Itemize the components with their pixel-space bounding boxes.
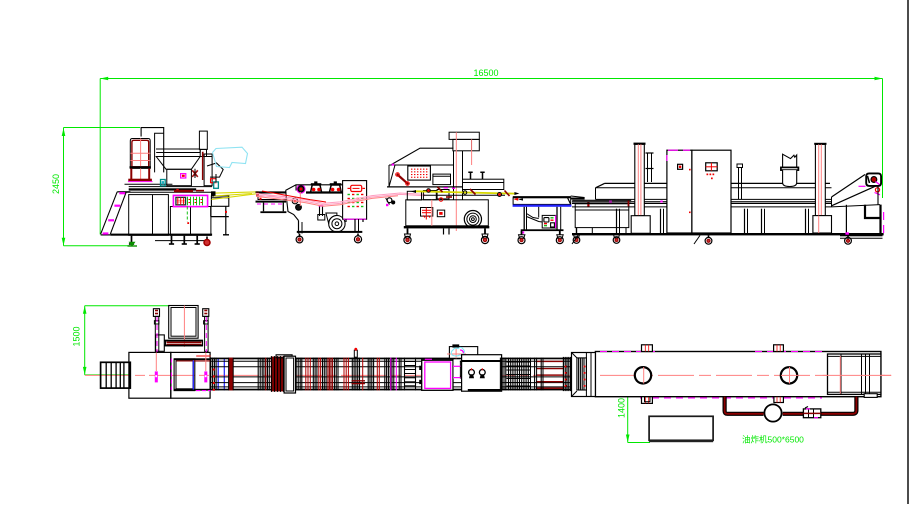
svg-text:油炸机500*6500: 油炸机500*6500 (742, 435, 804, 445)
svg-text:2450: 2450 (51, 174, 61, 194)
svg-text:1400: 1400 (617, 398, 627, 418)
svg-text:16500: 16500 (473, 68, 498, 78)
svg-text:1500: 1500 (72, 326, 82, 346)
